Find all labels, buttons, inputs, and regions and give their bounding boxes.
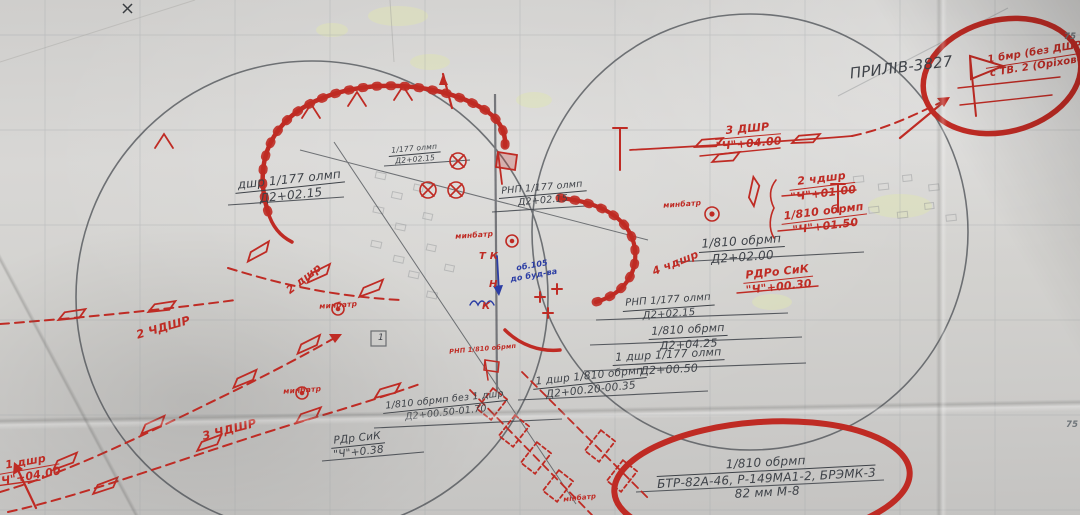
obrmp-810-right: 1/810 обрмп"Ч"+01.50 bbox=[780, 200, 869, 237]
grid-ref: ПРИЛІВ-3827 bbox=[846, 53, 956, 82]
dshr-1-810: 1 дшр 1/810 обрмпД2+00.20-00.35 bbox=[532, 365, 648, 402]
rnp-810-tiny: РНП 1/810 обрмп bbox=[446, 343, 519, 356]
dshr-177: дшр 1/177 олмпД2+02.15 bbox=[234, 168, 346, 208]
minbatr-2: минбатр bbox=[452, 230, 496, 241]
flag-callout: 1 бмр (без ДШР)с ТВ. 2 (Оріхове) bbox=[984, 39, 1080, 80]
dshr-3: 3 ДШР"Ч"+04.00 bbox=[714, 120, 782, 152]
letter-tk: Т К bbox=[476, 252, 501, 263]
chdshr-3: 3 ЧДШР bbox=[198, 416, 261, 443]
rdro-sik: РДРо СиК"Ч"+00.30 bbox=[742, 263, 814, 297]
rdr-sik: РДр СиК"Ч"+0.38 bbox=[330, 430, 386, 461]
rnp-177-a: РНП 1/177 олмпД2+02.15 bbox=[498, 179, 587, 210]
chdshr-2-right: 2 чдшр"Ч"+01.00 bbox=[788, 169, 857, 204]
map-photo: ПРИЛІВ-38271 бмр (без ДШР)с ТВ. 2 (Оріхо… bbox=[0, 0, 1080, 515]
obrmp-810-main: 1/810 обрмпД2+02.00 bbox=[698, 232, 786, 267]
map-annotations: ПРИЛІВ-38271 бмр (без ДШР)с ТВ. 2 (Оріхо… bbox=[0, 0, 1080, 515]
minbatr-5: мінбатр bbox=[560, 493, 600, 505]
dshr-2-diag: 2 дшр bbox=[282, 260, 326, 298]
chdshr-2-left: 2 ЧДШР bbox=[132, 313, 194, 342]
olmp-small: 1/177 олмпД2+02.15 bbox=[388, 142, 441, 166]
obrmp-bez-dshr: 1/810 обрмп без 1 дшрД2+00.50-01.70 bbox=[382, 389, 509, 425]
minbatr-3: минбатр bbox=[280, 385, 324, 396]
dshr-1-left: 1 дшр"Ч"+04.00 bbox=[0, 451, 62, 489]
minbatr-1: минбатр bbox=[316, 300, 360, 311]
grid-75-bottom: 75 bbox=[1063, 421, 1080, 430]
box-1: 1 bbox=[375, 334, 387, 344]
letter-n: Н bbox=[486, 280, 501, 291]
letter-k: К bbox=[479, 302, 493, 313]
minbatr-4: минбатр bbox=[660, 199, 704, 210]
chdshr-4: 4 чдшр bbox=[648, 248, 703, 279]
grid-75-top: 75 bbox=[1061, 33, 1079, 42]
roster: 1/810 обрмпБТР-82А-46, Р-149МА1-2, БРЭМК… bbox=[656, 451, 877, 505]
blue-note: об.105до буд-ва bbox=[508, 258, 558, 284]
rnp-177-b: РНП 1/177 олмпД2+02.15 bbox=[622, 293, 715, 324]
